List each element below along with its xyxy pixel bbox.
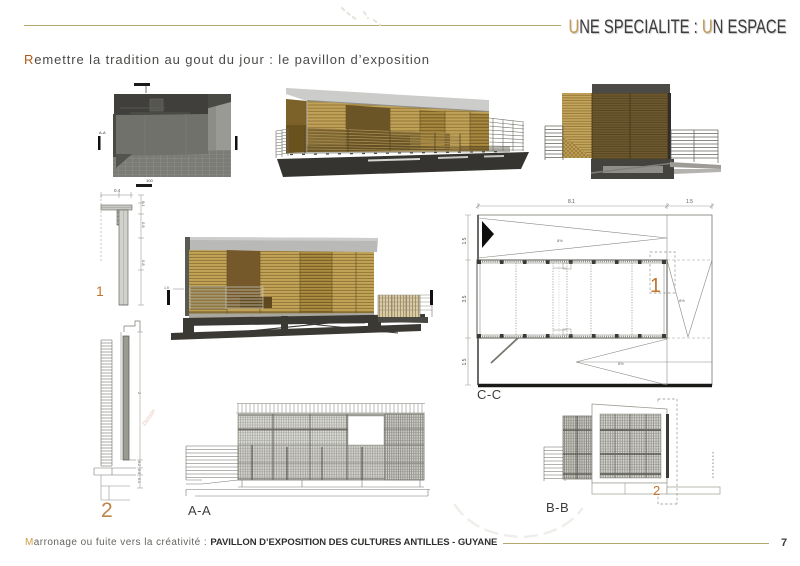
svg-text:0.4: 0.4: [114, 188, 121, 193]
svg-text:8%: 8%: [618, 361, 624, 366]
svg-text:A-A: A-A: [99, 130, 106, 135]
svg-text:1.5: 1.5: [462, 237, 468, 244]
svg-text:8%: 8%: [679, 298, 685, 303]
svg-text:C-C: C-C: [477, 387, 502, 402]
svg-text:1: 1: [96, 283, 104, 299]
svg-text:Dessin: Dessin: [142, 408, 158, 427]
svg-text:2: 2: [137, 392, 142, 395]
svg-text:1.9: 1.9: [164, 286, 169, 290]
svg-text:100: 100: [146, 178, 153, 183]
svg-text:0.1: 0.1: [137, 478, 141, 483]
svg-text:A-A: A-A: [188, 503, 211, 518]
svg-text:1: 1: [650, 275, 661, 297]
svg-text:0.1: 0.1: [141, 201, 146, 207]
svg-text:2: 2: [101, 499, 113, 520]
svg-text:0.8: 0.8: [141, 222, 146, 228]
svg-text:2: 2: [653, 483, 660, 498]
svg-text:0.2: 0.2: [137, 461, 141, 466]
svg-text:3.5: 3.5: [462, 295, 468, 302]
svg-text:8.1: 8.1: [568, 199, 575, 205]
svg-text:1.5: 1.5: [462, 358, 468, 365]
svg-text:0.8: 0.8: [141, 260, 146, 266]
svg-text:8%: 8%: [557, 238, 563, 243]
svg-text:0.3: 0.3: [137, 469, 141, 474]
svg-text:1.5: 1.5: [686, 199, 693, 205]
